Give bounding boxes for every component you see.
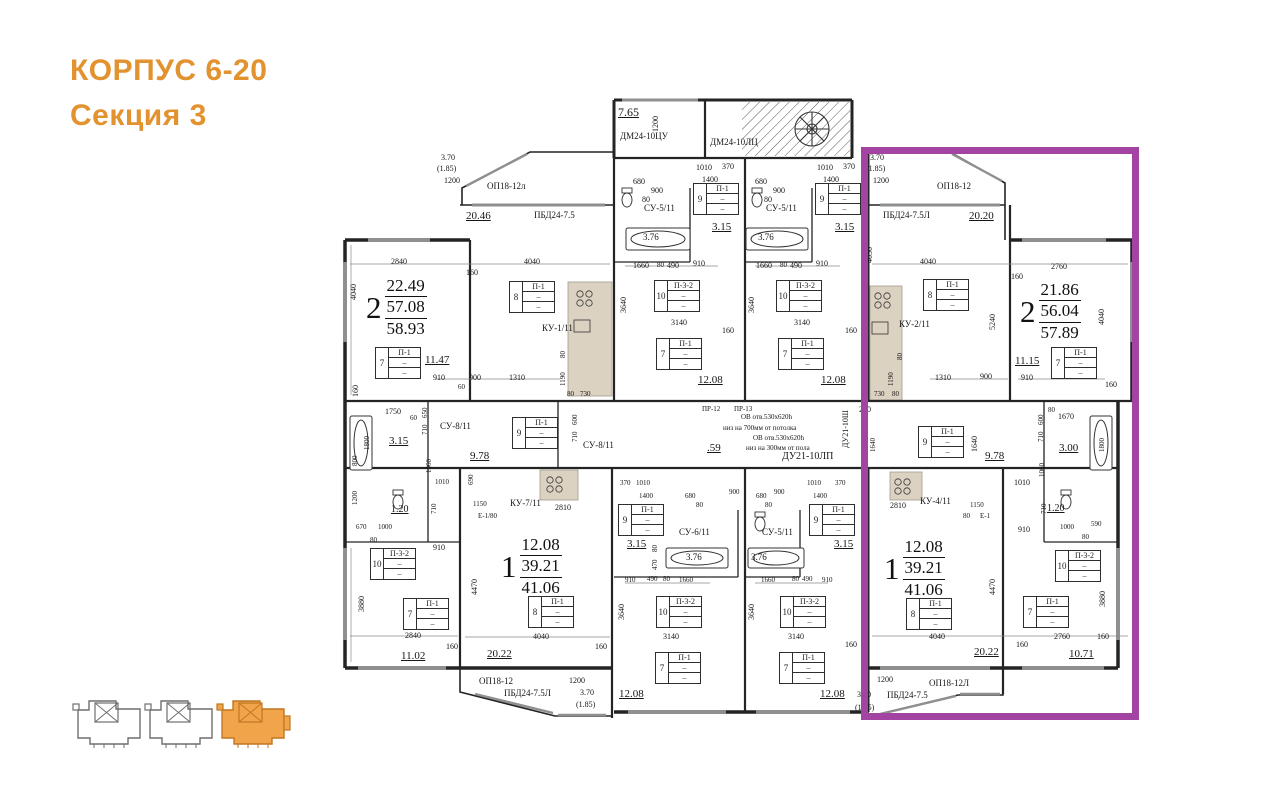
apartment-area-card: 112.0839.2141.06 <box>501 535 562 598</box>
plan-label: 11.02 <box>401 651 425 662</box>
plan-label: ПБД24-7.5Л <box>504 689 551 698</box>
plan-label: 3.15 <box>835 222 854 233</box>
plan-label: 1660 <box>679 577 693 584</box>
plan-label: 470 <box>652 560 659 571</box>
plan-label: 3.15 <box>834 539 853 550</box>
plan-label: 1010 <box>696 164 712 172</box>
plan-label: 9.78 <box>470 451 489 462</box>
plan-label: 900 <box>729 489 740 496</box>
plan-label: СУ-5/11 <box>766 204 797 213</box>
plan-label: 3140 <box>671 319 687 327</box>
section-title: Секция 3 <box>70 93 267 138</box>
furniture-spec-table: 10П-3-2–– <box>654 280 700 312</box>
plan-label: 370 <box>843 163 855 171</box>
plan-label: СУ-8/11 <box>583 441 614 450</box>
plan-label: ОП18-12л <box>487 182 526 191</box>
plan-label: 3640 <box>620 297 628 313</box>
plan-label: 2840 <box>391 258 407 266</box>
plan-label: 1010 <box>435 479 449 486</box>
plan-label: 60 <box>458 384 465 391</box>
plan-label: 80 <box>792 576 799 583</box>
plan-label: 910 <box>625 577 636 584</box>
plan-label: 80 <box>642 196 650 204</box>
plan-label: 370 <box>620 480 631 487</box>
plan-label: 3.15 <box>627 539 646 550</box>
plan-label: 160 <box>352 385 360 397</box>
plan-label: 1000 <box>378 524 392 531</box>
plan-label: 680 <box>685 493 696 500</box>
plan-label: 12.08 <box>619 689 644 700</box>
plan-label: 1400 <box>823 176 839 184</box>
plan-label: 1660 <box>633 262 649 270</box>
plan-label: 1200 <box>352 491 359 505</box>
plan-label: 3140 <box>788 633 804 641</box>
plan-label: 3640 <box>748 604 756 620</box>
plan-label: 3.76 <box>686 553 702 562</box>
plan-label: 3.70 <box>441 154 455 162</box>
furniture-spec-table: 9П-1–– <box>512 417 558 449</box>
plan-label: 680 <box>633 178 645 186</box>
plan-label: 1190 <box>560 372 567 386</box>
plan-label: 12.08 <box>820 689 845 700</box>
plan-label: 1010 <box>817 164 833 172</box>
plan-label: СУ-5/11 <box>644 204 675 213</box>
plan-label: 80 <box>696 502 703 509</box>
plan-label: 12.08 <box>821 375 846 386</box>
plan-label: 1.20 <box>391 505 409 515</box>
key-plan-section-1[interactable] <box>73 701 140 748</box>
key-plan-section-2[interactable] <box>145 701 212 748</box>
plan-label: 20.46 <box>466 211 491 222</box>
plan-label: 900 <box>651 187 663 195</box>
plan-label: 4040 <box>524 258 540 266</box>
plan-label: 1150 <box>473 501 487 508</box>
plan-label: 20.22 <box>487 649 512 660</box>
plan-label: ДМ24-10ЛЦ <box>710 138 758 147</box>
stove-icon <box>547 291 910 494</box>
plan-label: 4040 <box>350 284 358 300</box>
plan-label: СУ-5/11 <box>762 528 793 537</box>
plan-label: 690 <box>468 475 475 486</box>
plan-label: 4040 <box>533 633 549 641</box>
plan-label: 4470 <box>471 579 479 595</box>
furniture-spec-table: 7П-1–– <box>375 347 421 379</box>
plan-label: 2810 <box>555 504 571 512</box>
building-title: КОРПУС 6-20 <box>70 48 267 93</box>
plan-label: ДМ24-10ЦУ <box>620 132 668 141</box>
plan-label: 1200 <box>652 116 660 132</box>
plan-label: 910 <box>816 260 828 268</box>
plan-label: низ на 700мм от потолка <box>723 425 796 432</box>
plan-label: 710 <box>572 432 579 443</box>
plan-label: 490 <box>802 576 813 583</box>
plan-label: 680 <box>755 178 767 186</box>
plan-label: 80 <box>765 502 772 509</box>
plan-label: 80 <box>780 262 787 269</box>
plan-label: 80 <box>663 576 670 583</box>
plan-label: 3880 <box>358 596 366 612</box>
furniture-spec-table: 7П-1–– <box>779 652 825 684</box>
plan-label: 3640 <box>748 297 756 313</box>
key-plan-section-3[interactable] <box>217 701 290 748</box>
plan-label: 3.70 <box>580 689 594 697</box>
plan-label: 160 <box>595 643 607 651</box>
plan-label: 1750 <box>385 408 401 416</box>
plan-label: 80 <box>657 262 664 269</box>
plan-label: 1200 <box>569 677 585 685</box>
plan-label: 650 <box>422 408 429 419</box>
plan-label: .59 <box>707 443 721 454</box>
plan-label: 730 <box>580 391 591 398</box>
plan-label: 2840 <box>405 632 421 640</box>
plan-label: ДУ21-10ЛП <box>782 452 833 462</box>
plan-label: 7.65 <box>618 106 639 118</box>
plan-label: 1400 <box>639 493 653 500</box>
plan-label: 3.76 <box>643 233 659 242</box>
furniture-spec-table: 7П-1–– <box>655 652 701 684</box>
furniture-spec-table: 7П-1–– <box>778 338 824 370</box>
plan-label: 12.08 <box>698 375 723 386</box>
plan-label: 370 <box>835 480 846 487</box>
plan-label: 1660 <box>756 262 772 270</box>
plan-label: Е-1/80 <box>478 513 497 520</box>
plan-label: 900 <box>773 187 785 195</box>
apartment-area-card: 222.4957.0858.93 <box>366 276 427 339</box>
plan-label: ДУ21-10Ш <box>842 410 850 448</box>
plan-label: 910 <box>433 374 445 382</box>
plan-label: СУ-8/11 <box>440 422 471 431</box>
plan-label: КУ-1/11 <box>542 324 573 333</box>
furniture-spec-table: 8П-1–– <box>528 596 574 628</box>
plan-label: 490 <box>667 262 679 270</box>
plan-label: 160 <box>845 641 857 649</box>
key-plan <box>70 684 300 760</box>
spiral-stair-icon <box>795 112 829 146</box>
plan-label: 80 <box>764 196 772 204</box>
plan-label: 1660 <box>761 577 775 584</box>
plan-label: СУ-6/11 <box>679 528 710 537</box>
plan-label: 3.15 <box>389 436 408 447</box>
plan-label: ПБД24-7.5 <box>534 211 575 220</box>
plan-label: 910 <box>822 577 833 584</box>
plan-label: 80 <box>652 545 659 552</box>
plan-label: 910 <box>693 260 705 268</box>
plan-label: 60 <box>410 415 417 422</box>
plan-label: 3.15 <box>712 222 731 233</box>
plan-label: (1.85) <box>437 165 456 173</box>
plan-label: 1010 <box>807 480 821 487</box>
furniture-spec-table: 9П-1–– <box>693 183 739 215</box>
plan-label: 490 <box>647 576 658 583</box>
plan-label: ОП18-12 <box>479 677 513 686</box>
plan-label: 160 <box>722 327 734 335</box>
furniture-spec-table: 9П-1–– <box>618 504 664 536</box>
furniture-spec-table: 8П-1–– <box>509 281 555 313</box>
plan-label: 1010 <box>636 480 650 487</box>
plan-label: 900 <box>469 374 481 382</box>
plan-label: 600 <box>572 415 579 426</box>
plan-label: 3.76 <box>758 233 774 242</box>
plan-label: 160 <box>845 327 857 335</box>
plan-label: низ на 300мм от пола <box>746 445 810 452</box>
plan-label: 160 <box>446 643 458 651</box>
plan-label: ОВ отв.530х620h <box>753 435 804 442</box>
furniture-spec-table: 10П-3-2–– <box>370 548 416 580</box>
plan-label: 3640 <box>618 604 626 620</box>
furniture-spec-table: 10П-3-2–– <box>780 596 826 628</box>
plan-label: ОВ отв.530х620h <box>741 414 792 421</box>
plan-label: (1.85) <box>576 701 595 709</box>
plan-label: 11.47 <box>425 355 449 366</box>
furniture-spec-table: 10П-3-2–– <box>656 596 702 628</box>
plan-label: ПР-12 <box>702 406 720 413</box>
plan-label: 910 <box>433 544 445 552</box>
plan-label: 1060 <box>426 459 433 473</box>
plan-label: 710 <box>422 425 429 436</box>
plan-label: 80 <box>560 351 567 358</box>
plan-label: 3140 <box>794 319 810 327</box>
plan-label: 710 <box>431 504 438 515</box>
plan-label: 670 <box>356 524 367 531</box>
plan-label: 680 <box>756 493 767 500</box>
plan-label: 1310 <box>509 374 525 382</box>
plan-label: 160 <box>466 269 478 277</box>
plan-label: КУ-7/11 <box>510 499 541 508</box>
stair-hatch <box>742 102 850 156</box>
furniture-spec-table: 9П-1–– <box>815 183 861 215</box>
plan-label: 80 <box>567 391 574 398</box>
title-block: КОРПУС 6-20 Секция 3 <box>70 48 267 138</box>
plan-label: 1400 <box>702 176 718 184</box>
plan-label: ПР-13 <box>734 406 752 413</box>
plan-label: 3140 <box>663 633 679 641</box>
plan-label: 1200 <box>444 177 460 185</box>
furniture-spec-table: 7П-1–– <box>403 598 449 630</box>
furniture-spec-table: 9П-1–– <box>809 504 855 536</box>
plan-label: 900 <box>774 489 785 496</box>
plan-label: 3.76 <box>751 553 767 562</box>
plan-label: 800 <box>352 456 359 467</box>
furniture-spec-table: 7П-1–– <box>656 338 702 370</box>
plan-label: 370 <box>722 163 734 171</box>
section-highlight-box <box>861 147 1139 720</box>
plan-label: 80 <box>370 537 377 544</box>
plan-label: 490 <box>790 262 802 270</box>
furniture-spec-table: 10П-3-2–– <box>776 280 822 312</box>
plan-label: 1400 <box>813 493 827 500</box>
plan-label: 1800 <box>364 436 371 450</box>
